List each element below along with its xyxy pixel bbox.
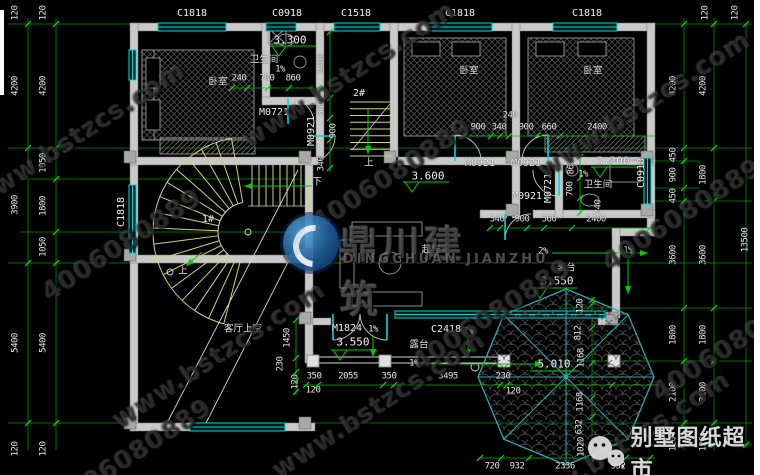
floor-plan-drawing [0,0,760,475]
gazebo-roof [478,289,654,465]
left-edge-strip [0,10,4,95]
floor-plan-canvas: C1818C0918C1518C1818C1818120120120120420… [0,0,760,475]
right-edge-strip [754,0,760,475]
dingchuan-logo-icon [283,215,339,271]
